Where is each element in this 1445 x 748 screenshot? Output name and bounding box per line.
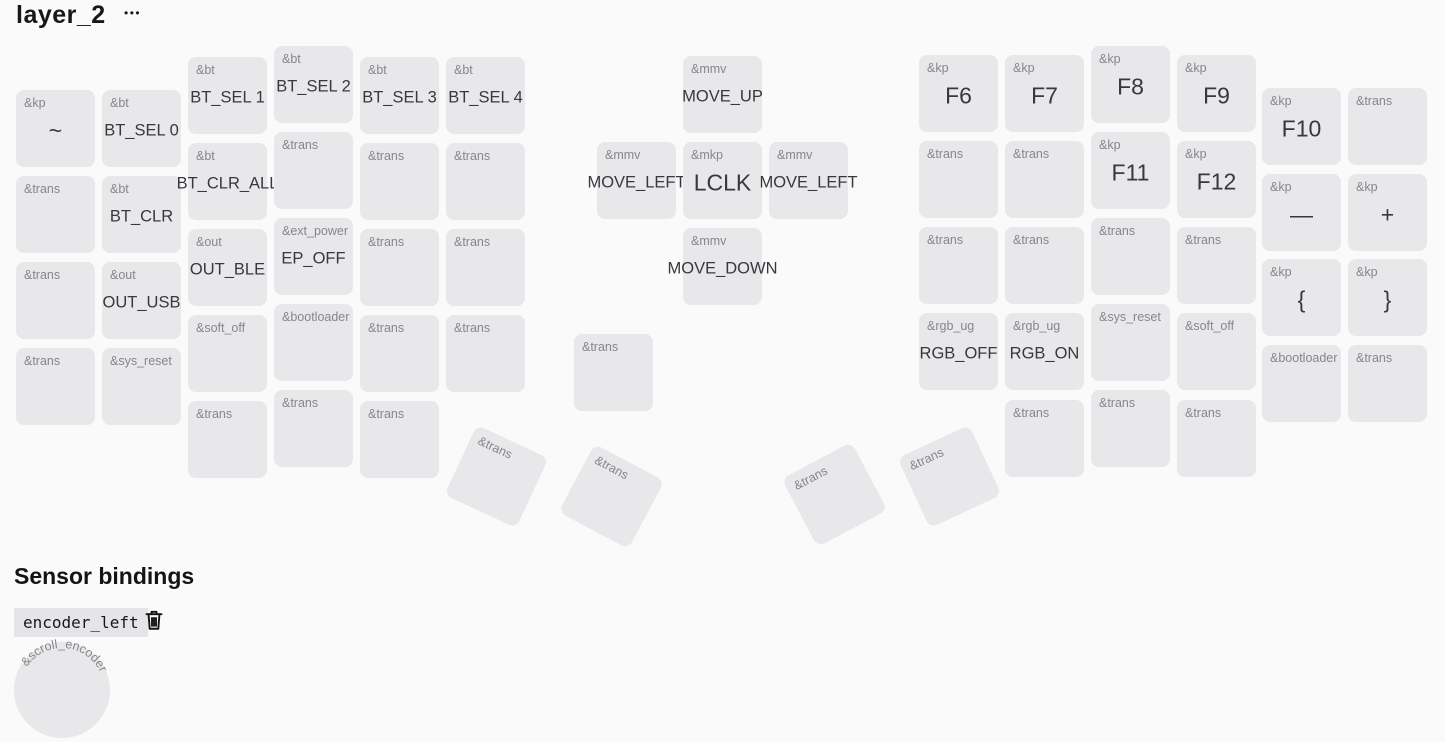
key[interactable]: &trans (919, 141, 998, 218)
encoder-key[interactable]: &scroll_encoder (0, 638, 130, 748)
key[interactable]: &btBT_SEL 2 (274, 46, 353, 123)
key[interactable]: &bootloader (274, 304, 353, 381)
key-binding-label: MOVE_UP (682, 87, 763, 106)
delete-sensor-button[interactable] (144, 609, 164, 631)
key-behavior-label: &trans (582, 340, 618, 354)
key[interactable]: &trans (782, 442, 888, 547)
key-behavior-label: &trans (791, 464, 829, 493)
key-behavior-label: &trans (196, 407, 232, 421)
key-behavior-label: &trans (454, 149, 490, 163)
key-behavior-label: &trans (454, 235, 490, 249)
key[interactable]: &trans (1177, 227, 1256, 304)
key[interactable]: &trans (574, 334, 653, 411)
key-binding-label: + (1381, 201, 1394, 228)
key[interactable]: &kpF11 (1091, 132, 1170, 209)
key-binding-label: F11 (1112, 159, 1150, 186)
key-behavior-label: &trans (368, 321, 404, 335)
key[interactable]: &mmvMOVE_LEFT (597, 142, 676, 219)
key[interactable]: &outOUT_BLE (188, 229, 267, 306)
key[interactable]: &mmvMOVE_DOWN (683, 228, 762, 305)
key[interactable]: &ext_powerEP_OFF (274, 218, 353, 295)
key[interactable]: &trans (1005, 400, 1084, 477)
key[interactable]: &trans (1091, 390, 1170, 467)
key-binding-label: MOVE_LEFT (759, 173, 857, 192)
key-behavior-label: &trans (1185, 406, 1221, 420)
trash-icon (144, 619, 164, 634)
key[interactable]: &btBT_CLR (102, 176, 181, 253)
key-behavior-label: &rgb_ug (1013, 319, 1060, 333)
key-binding-label: MOVE_LEFT (587, 173, 685, 192)
key-binding-label: BT_CLR_ALL (177, 174, 279, 193)
key-binding-label: F12 (1197, 168, 1237, 195)
key-binding-label: F10 (1282, 115, 1322, 142)
key-behavior-label: &sys_reset (1099, 310, 1161, 324)
key-behavior-label: &kp (1099, 138, 1121, 152)
key-behavior-label: &bootloader (1270, 351, 1337, 365)
key-behavior-label: &trans (927, 233, 963, 247)
key-behavior-label: &out (196, 235, 222, 249)
key[interactable]: &kp— (1262, 174, 1341, 251)
key[interactable]: &soft_off (1177, 313, 1256, 390)
key-behavior-label: &mmv (691, 62, 726, 76)
key[interactable]: &outOUT_USB (102, 262, 181, 339)
key-behavior-label: &bt (368, 63, 387, 77)
key-binding-label: ~ (49, 117, 62, 144)
key[interactable]: &trans (16, 176, 95, 253)
key[interactable]: &btBT_SEL 1 (188, 57, 267, 134)
sensor-binding-chip[interactable]: encoder_left (14, 608, 148, 637)
key-behavior-label: &trans (454, 321, 490, 335)
key[interactable]: &kpF6 (919, 55, 998, 132)
key-binding-label: BT_SEL 2 (276, 77, 351, 96)
key[interactable]: &kp} (1348, 259, 1427, 336)
key-binding-label: F8 (1117, 73, 1144, 100)
page-title: layer_2 (16, 1, 106, 30)
key-binding-label: — (1290, 201, 1313, 228)
key[interactable]: &rgb_ugRGB_ON (1005, 313, 1084, 390)
key-binding-label: OUT_BLE (190, 260, 265, 279)
key-behavior-label: &trans (1185, 233, 1221, 247)
key[interactable]: &btBT_SEL 0 (102, 90, 181, 167)
key[interactable]: &trans (360, 315, 439, 392)
key-behavior-label: &kp (1185, 147, 1207, 161)
key-behavior-label: &mkp (691, 148, 723, 162)
key[interactable]: &trans (16, 262, 95, 339)
key-behavior-label: &trans (368, 235, 404, 249)
sensor-bindings-heading: Sensor bindings (14, 563, 194, 590)
key[interactable]: &kpF9 (1177, 55, 1256, 132)
key-binding-label: EP_OFF (281, 249, 345, 268)
key[interactable]: &trans (446, 229, 525, 306)
key[interactable]: &btBT_SEL 4 (446, 57, 525, 134)
key[interactable]: &trans (188, 401, 267, 478)
key[interactable]: &kpF7 (1005, 55, 1084, 132)
key[interactable]: &trans (1005, 141, 1084, 218)
key[interactable]: &trans (897, 425, 1001, 528)
key[interactable]: &trans (446, 143, 525, 220)
key[interactable]: &kpF10 (1262, 88, 1341, 165)
key[interactable]: &mkpLCLK (683, 142, 762, 219)
key-behavior-label: &sys_reset (110, 354, 172, 368)
key[interactable]: &kp{ (1262, 259, 1341, 336)
key[interactable]: &trans (360, 401, 439, 478)
key-behavior-label: &trans (1013, 147, 1049, 161)
key-behavior-label: &trans (1099, 224, 1135, 238)
key[interactable]: &trans (1348, 345, 1427, 422)
key-behavior-label: &trans (1356, 94, 1392, 108)
key-behavior-label: &trans (1013, 406, 1049, 420)
key[interactable]: &trans (444, 425, 548, 528)
key-behavior-label: &kp (1270, 265, 1292, 279)
key-binding-label: F9 (1203, 82, 1230, 109)
bottom-edge (0, 742, 1445, 748)
key-behavior-label: &bt (282, 52, 301, 66)
key-behavior-label: &bt (196, 63, 215, 77)
key[interactable]: &trans (360, 143, 439, 220)
key-behavior-label: &kp (1099, 52, 1121, 66)
key[interactable]: &sys_reset (1091, 304, 1170, 381)
key-behavior-label: &mmv (691, 234, 726, 248)
key-behavior-label: &trans (907, 445, 946, 473)
key[interactable]: &btBT_SEL 3 (360, 57, 439, 134)
key[interactable]: &mmvMOVE_LEFT (769, 142, 848, 219)
key[interactable]: &kpF8 (1091, 46, 1170, 123)
key-behavior-label: &soft_off (196, 321, 245, 335)
key[interactable]: &sys_reset (102, 348, 181, 425)
key-behavior-label: &kp (1356, 265, 1378, 279)
key[interactable]: &btBT_CLR_ALL (188, 143, 267, 220)
key[interactable]: &trans (1177, 400, 1256, 477)
key-behavior-label: &soft_off (1185, 319, 1234, 333)
key-behavior-label: &kp (1356, 180, 1378, 194)
key-binding-label: RGB_OFF (920, 344, 998, 363)
key-behavior-label: &rgb_ug (927, 319, 974, 333)
key-behavior-label: &kp (1013, 61, 1035, 75)
layer-menu-icon[interactable]: ••• (122, 4, 143, 22)
key-behavior-label: &kp (927, 61, 949, 75)
key-behavior-label: &kp (1185, 61, 1207, 75)
key-behavior-label: &bootloader (282, 310, 349, 324)
key[interactable]: &trans (919, 227, 998, 304)
key-binding-label: RGB_ON (1010, 344, 1080, 363)
key[interactable]: &kp~ (16, 90, 95, 167)
key[interactable]: &trans (559, 444, 665, 549)
key-behavior-label: &trans (24, 182, 60, 196)
key[interactable]: &trans (446, 315, 525, 392)
key-behavior-label: &bt (454, 63, 473, 77)
key-behavior-label: &kp (1270, 94, 1292, 108)
key-behavior-label: &trans (24, 354, 60, 368)
key-binding-label: MOVE_DOWN (667, 259, 777, 278)
key-behavior-label: &ext_power (282, 224, 348, 238)
key-binding-label: BT_CLR (110, 207, 173, 226)
key-binding-label: BT_SEL 3 (362, 88, 437, 107)
key[interactable]: &trans (274, 390, 353, 467)
key-binding-label: BT_SEL 4 (448, 88, 523, 107)
key-behavior-label: &bt (110, 96, 129, 110)
key[interactable]: &trans (1091, 218, 1170, 295)
key-binding-label: BT_SEL 0 (104, 121, 179, 140)
key-behavior-label: &out (110, 268, 136, 282)
key[interactable]: &trans (1348, 88, 1427, 165)
key-behavior-label: &kp (24, 96, 46, 110)
key-behavior-label: &trans (368, 407, 404, 421)
key-binding-label: OUT_USB (103, 293, 181, 312)
key-behavior-label: &kp (1270, 180, 1292, 194)
key-behavior-label: &trans (1356, 351, 1392, 365)
key-behavior-label: &trans (368, 149, 404, 163)
key-behavior-label: &bt (196, 149, 215, 163)
key[interactable]: &trans (16, 348, 95, 425)
key-binding-label: F6 (945, 82, 972, 109)
key-binding-label: { (1298, 286, 1306, 313)
key[interactable]: &trans (1005, 227, 1084, 304)
key-behavior-label: &trans (1013, 233, 1049, 247)
key[interactable]: &mmvMOVE_UP (683, 56, 762, 133)
key-behavior-label: &mmv (777, 148, 812, 162)
key-binding-label: } (1384, 286, 1392, 313)
key-behavior-label: &trans (1099, 396, 1135, 410)
key[interactable]: &bootloader (1262, 345, 1341, 422)
key-binding-label: BT_SEL 1 (190, 88, 265, 107)
key[interactable]: &rgb_ugRGB_OFF (919, 313, 998, 390)
key-behavior-label: &trans (282, 396, 318, 410)
key[interactable]: &kp+ (1348, 174, 1427, 251)
key-behavior-label: &bt (110, 182, 129, 196)
key-behavior-label: &trans (927, 147, 963, 161)
key-behavior-label: &trans (24, 268, 60, 282)
key[interactable]: &soft_off (188, 315, 267, 392)
key-binding-label: LCLK (694, 169, 752, 196)
key[interactable]: &trans (360, 229, 439, 306)
key-behavior-label: &trans (282, 138, 318, 152)
key-binding-label: F7 (1031, 82, 1058, 109)
key-behavior-label: &trans (476, 434, 515, 462)
key-behavior-label: &mmv (605, 148, 640, 162)
key-behavior-label: &trans (592, 453, 630, 482)
key[interactable]: &trans (274, 132, 353, 209)
key[interactable]: &kpF12 (1177, 141, 1256, 218)
